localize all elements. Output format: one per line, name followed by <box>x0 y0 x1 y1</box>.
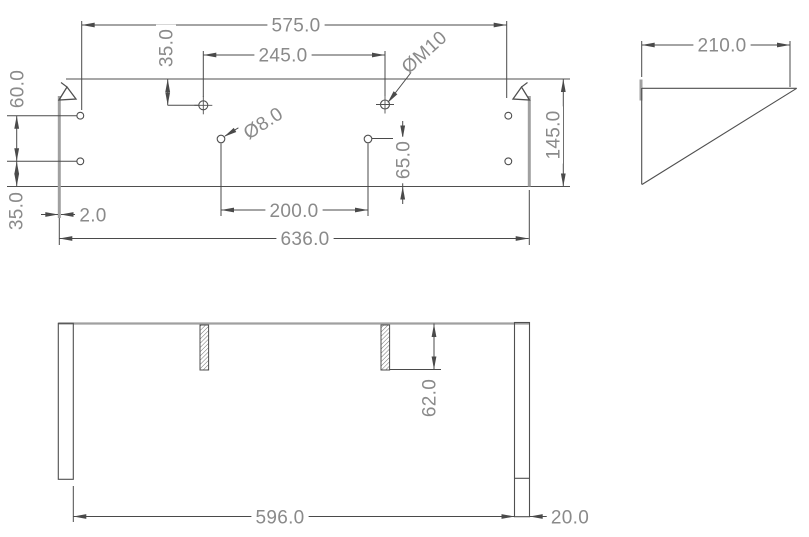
dim-20-arrow-right <box>530 514 543 519</box>
dim-2-arrow-left <box>45 212 58 217</box>
drawing-svg: 575.0245.035.0ØM10Ø8.065.060.035.02.0145… <box>0 0 809 537</box>
dim-20-label-text: 20.0 <box>551 508 589 529</box>
dim-60-label: 60.0 <box>7 66 29 113</box>
dim-636-arrow-left <box>59 236 72 241</box>
dim-35-left-label-text: 35.0 <box>7 192 28 230</box>
dim-210-arrow-left <box>642 43 655 48</box>
label-d8: Ø8.0 <box>238 102 289 145</box>
hole-d8-left <box>217 135 225 143</box>
dim-636-arrow-right <box>516 236 529 241</box>
front-left-corner-tab <box>59 87 76 100</box>
bottom-left-side-panel <box>58 323 73 479</box>
dim-62-arrow-up <box>432 324 437 337</box>
dim-65-arrow-top <box>400 126 405 139</box>
dim-35-top-arrow-down <box>165 92 170 105</box>
front-right-corner-tab-tail <box>522 83 528 88</box>
dim-60-arrow-up <box>14 116 19 129</box>
dim-35-left-arrow-up <box>14 161 19 174</box>
dim-636-label-text: 636.0 <box>280 229 329 250</box>
dim-60-label-text: 60.0 <box>8 70 29 108</box>
leader-m10-arrow <box>386 91 398 104</box>
label-m10-text: ØM10 <box>398 27 451 78</box>
dim-575-arrow-left <box>82 23 95 28</box>
front-right-corner-tab <box>513 87 530 100</box>
dim-145-arrow-up <box>561 79 566 92</box>
dim-200-label-text: 200.0 <box>269 201 318 222</box>
side-gusset-hypotenuse <box>642 88 797 184</box>
dim-596-arrow-right <box>502 514 515 519</box>
bottom-slot-left <box>200 325 209 370</box>
dim-245-arrow-left <box>203 53 216 58</box>
dim-210-label: 210.0 <box>693 35 750 57</box>
dim-35-top-arrow-up <box>165 79 170 92</box>
dim-575-label: 575.0 <box>267 15 324 37</box>
dim-596-label: 596.0 <box>251 507 308 529</box>
dim-65-label: 65.0 <box>393 137 415 184</box>
dim-65-arrow-bottom <box>400 187 405 200</box>
dim-145-label-text: 145.0 <box>544 110 565 159</box>
dim-2-label: 2.0 <box>75 205 111 227</box>
hole-side-right-upper <box>505 112 512 119</box>
label-m10: ØM10 <box>398 27 452 78</box>
hole-side-left-lower <box>77 158 84 165</box>
dim-2-label-text: 2.0 <box>79 206 106 227</box>
hole-side-left-upper <box>77 112 84 119</box>
bottom-right-side-panel <box>515 323 530 517</box>
dim-245-label: 245.0 <box>254 45 311 67</box>
hole-d8-right <box>364 135 372 143</box>
dim-575-arrow-right <box>494 23 507 28</box>
dim-62-arrow-down <box>432 357 437 370</box>
dim-35-top-label: 35.0 <box>156 25 178 72</box>
dim-596-label-text: 596.0 <box>255 508 304 529</box>
dim-245-label-text: 245.0 <box>258 46 307 67</box>
front-left-corner-tab-tail <box>61 83 67 88</box>
dim-200-arrow-left <box>221 208 234 213</box>
dim-245-arrow-right <box>372 53 385 58</box>
dim-596-arrow-left <box>73 514 86 519</box>
dim-210-label-text: 210.0 <box>697 36 746 57</box>
bottom-slot-right <box>381 325 390 370</box>
dim-35-left-label: 35.0 <box>6 188 28 235</box>
dim-210-arrow-right <box>777 43 790 48</box>
dim-2-arrow-right <box>61 212 74 217</box>
dim-145-arrow-down <box>561 174 566 187</box>
dim-65-label-text: 65.0 <box>394 141 415 179</box>
dim-35-top-label-text: 35.0 <box>157 29 178 67</box>
dim-636-label: 636.0 <box>276 229 333 251</box>
hole-side-right-lower <box>505 158 512 165</box>
dim-145-label: 145.0 <box>543 106 565 163</box>
dim-575-label-text: 575.0 <box>271 16 320 37</box>
dim-35-left-arrow-down <box>14 174 19 187</box>
dim-20-label: 20.0 <box>547 507 594 529</box>
dim-60-arrow-down <box>14 148 19 161</box>
dim-62-label-text: 62.0 <box>420 379 441 417</box>
dim-200-label: 200.0 <box>265 201 322 223</box>
dim-62-label: 62.0 <box>419 375 441 422</box>
dim-200-arrow-right <box>355 208 368 213</box>
cad-drawing: 575.0245.035.0ØM10Ø8.065.060.035.02.0145… <box>0 0 809 537</box>
